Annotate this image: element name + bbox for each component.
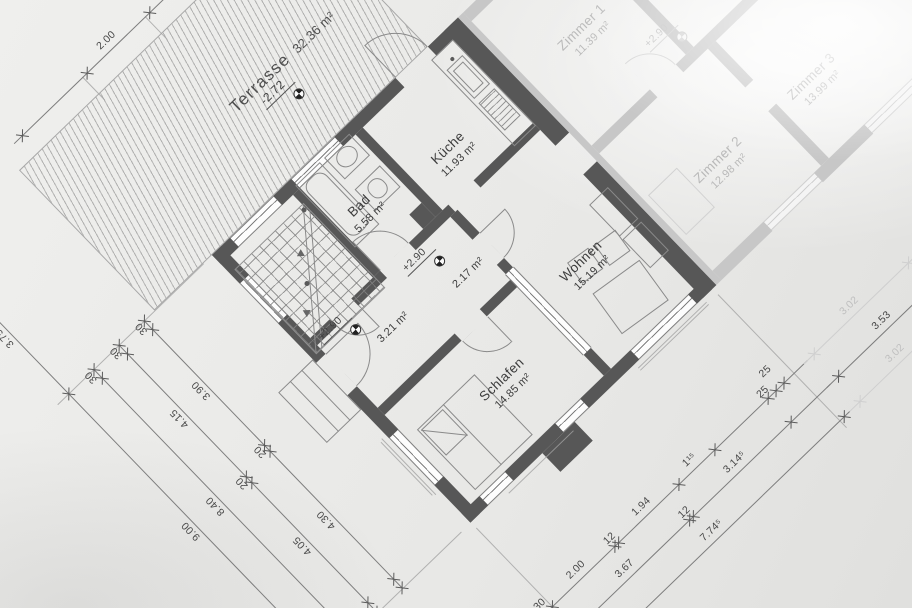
door-swing-arc bbox=[480, 208, 529, 257]
room-label-zimmer3: Zimmer 313.99 m² bbox=[783, 49, 848, 114]
dim-tick bbox=[791, 416, 792, 429]
stair-direction-arrow bbox=[303, 310, 311, 317]
dim-tick bbox=[149, 6, 150, 19]
blueprint-photo: Terrasse32.36 m² -2.72 bbox=[0, 0, 912, 608]
dim-label: 3.75 bbox=[0, 305, 37, 371]
dim-tick bbox=[844, 410, 845, 423]
level-marker-icon bbox=[432, 253, 448, 269]
wall-faded bbox=[768, 104, 829, 166]
door-swing-arc bbox=[462, 317, 511, 366]
dimension-chain-se-2: 3.67 12 3.14⁵ bbox=[553, 384, 831, 608]
dim-tick bbox=[838, 370, 839, 383]
dim-tick bbox=[68, 387, 69, 400]
room-area: 3.21 m² bbox=[374, 309, 412, 346]
dim-tick bbox=[401, 581, 402, 594]
wall-faded bbox=[708, 41, 753, 87]
room-label-zimmer2: Zimmer 212.98 m² bbox=[690, 133, 755, 198]
dim-tick bbox=[814, 347, 815, 360]
room-area: 2.17 m² bbox=[450, 254, 488, 291]
dim-tick bbox=[714, 443, 715, 456]
wall-faded bbox=[592, 89, 658, 153]
dim-tick bbox=[908, 256, 909, 269]
window-faded bbox=[864, 76, 912, 133]
dim-tick bbox=[678, 478, 679, 491]
dim-tick bbox=[552, 600, 553, 608]
room-label-flur: 3.21 m² bbox=[374, 309, 412, 346]
room-label-kueche: Küche11.93 m² bbox=[426, 126, 480, 180]
dim-tick bbox=[22, 129, 23, 142]
dim-tick bbox=[87, 67, 88, 80]
dimension-chain-se-1: 30 2.00 12 1.94 1¹⁵ 25 25 bbox=[530, 360, 808, 608]
wall-faded bbox=[463, 0, 530, 21]
dim-tick bbox=[393, 573, 394, 586]
door-swing-arc-faded bbox=[770, 0, 818, 13]
wall-faded bbox=[712, 221, 772, 280]
dim-tick bbox=[859, 395, 860, 408]
dim-tick bbox=[367, 596, 368, 608]
dimension-chain-sw-2: 30 4.15 20 4.05 bbox=[118, 345, 377, 608]
room-label-diele: 2.17 m² bbox=[450, 254, 488, 291]
wall bbox=[584, 348, 611, 376]
stair-direction-arrow bbox=[297, 249, 305, 256]
room-label-zimmer1: Zimmer 111.39 m² bbox=[554, 0, 619, 65]
window-faded bbox=[764, 173, 823, 230]
wall bbox=[450, 210, 479, 240]
